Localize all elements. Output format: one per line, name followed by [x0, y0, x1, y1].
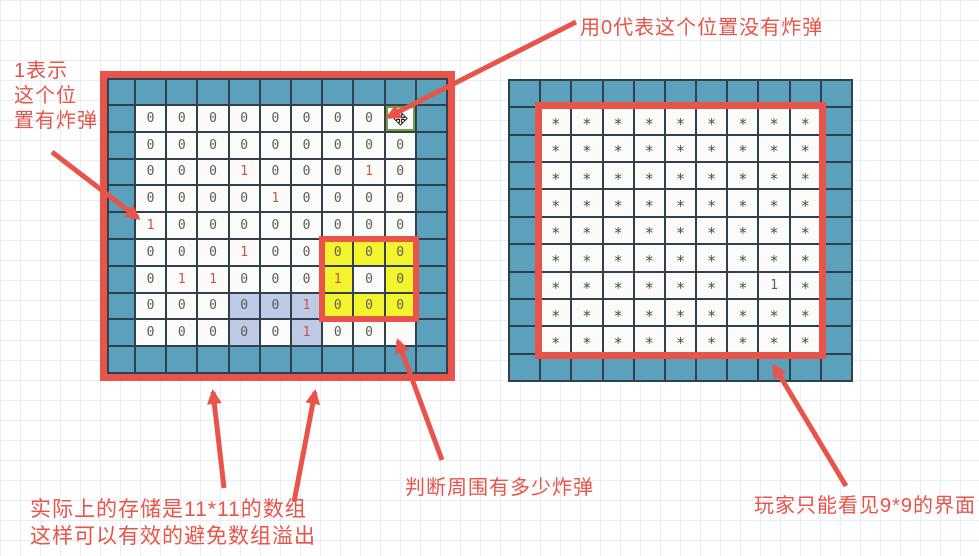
grid-cell: *: [541, 273, 570, 298]
cell-value: 0: [271, 298, 279, 313]
cell-value: *: [738, 279, 747, 297]
cell-value: 0: [240, 218, 248, 233]
grid-cell: *: [759, 300, 788, 325]
cell-value: *: [551, 142, 560, 160]
border-cell: [666, 355, 695, 380]
border-cell: [354, 80, 383, 104]
grid-cell: *: [541, 163, 570, 188]
grid-cell: 0: [136, 186, 165, 211]
border-cell: [604, 355, 633, 380]
grid-cell: 0: [198, 294, 227, 319]
border-cell: [510, 355, 539, 380]
cell-value: 0: [209, 164, 217, 179]
cell-value: *: [645, 197, 654, 215]
cell-value: *: [551, 197, 560, 215]
cell-value: *: [551, 279, 560, 297]
cell-value: 0: [365, 325, 373, 340]
cell-value: *: [676, 252, 685, 270]
cell-value: *: [738, 115, 747, 133]
annotation-left-line3: 置有炸弹: [14, 109, 98, 134]
grid-cell: *: [791, 245, 820, 270]
move-cursor-icon: [393, 111, 408, 126]
cell-value: *: [770, 115, 779, 133]
cell-value: 0: [303, 191, 311, 206]
cell-value: 0: [209, 298, 217, 313]
cell-value: *: [707, 252, 716, 270]
cell-value: *: [707, 197, 716, 215]
grid-cell: *: [604, 136, 633, 161]
grid-cell: *: [666, 163, 695, 188]
cell-value: *: [645, 307, 654, 325]
cell-value: 0: [271, 164, 279, 179]
cell-value: *: [676, 142, 685, 160]
grid-cell: *: [791, 163, 820, 188]
grid-cell: *: [604, 245, 633, 270]
cell-value: 0: [303, 111, 311, 126]
border-cell: [417, 347, 446, 372]
grid-cell: *: [759, 108, 788, 133]
cell-value: 0: [209, 245, 217, 260]
border-cell: [198, 347, 227, 372]
grid-cell: *: [759, 163, 788, 188]
grid-cell: *: [572, 300, 601, 325]
grid-cell: 1: [292, 320, 321, 345]
grid-cell: *: [635, 300, 664, 325]
grid-cell: *: [697, 190, 726, 215]
grid-cell: *: [572, 108, 601, 133]
cell-value: 0: [209, 218, 217, 233]
cell-value: 0: [147, 298, 155, 313]
cell-value: *: [645, 142, 654, 160]
border-cell: [697, 355, 726, 380]
grid-cell: *: [604, 163, 633, 188]
grid-cell: 0: [292, 267, 321, 292]
border-cell: [167, 347, 196, 372]
cell-value: 0: [240, 111, 248, 126]
grid-cell: *: [541, 300, 570, 325]
cell-value: *: [770, 224, 779, 242]
border-cell: [417, 186, 446, 211]
cell-value: 1: [303, 298, 311, 313]
cell-value: *: [551, 307, 560, 325]
cell-value: 0: [396, 218, 404, 233]
border-cell: [572, 81, 601, 106]
cell-value: *: [738, 252, 747, 270]
cell-value: 0: [209, 191, 217, 206]
grid-cell: *: [541, 136, 570, 161]
cell-value: *: [801, 115, 810, 133]
grid-cell: 0: [292, 186, 321, 211]
border-cell: [292, 347, 321, 372]
grid-cell: 0: [292, 133, 321, 158]
border-cell: [510, 327, 539, 352]
cell-value: 0: [147, 111, 155, 126]
border-cell: [822, 273, 851, 298]
cell-value: *: [551, 115, 560, 133]
cell-value: *: [676, 115, 685, 133]
grid-cell: *: [635, 218, 664, 243]
cell-value: *: [770, 334, 779, 352]
cell-value: 1: [770, 278, 778, 293]
cell-value: 0: [303, 218, 311, 233]
cell-value: *: [707, 334, 716, 352]
grid-cell: *: [728, 108, 757, 133]
cell-value: 0: [240, 191, 248, 206]
cell-value: 1: [240, 245, 248, 260]
cell-value: 0: [365, 138, 373, 153]
cell-value: *: [582, 197, 591, 215]
border-cell: [109, 320, 134, 345]
grid-cell: 0: [167, 213, 196, 238]
border-cell: [822, 245, 851, 270]
border-cell: [230, 347, 259, 372]
grid-cell: *: [697, 273, 726, 298]
grid-cell: 0: [198, 213, 227, 238]
grid-cell: *: [791, 300, 820, 325]
border-cell: [230, 80, 259, 104]
cell-value: 0: [178, 191, 186, 206]
cell-value: *: [645, 115, 654, 133]
border-cell: [822, 108, 851, 133]
border-cell: [417, 133, 446, 158]
player-view-grid: ****************************************…: [508, 79, 853, 382]
cell-value: 0: [147, 138, 155, 153]
cell-value: *: [582, 252, 591, 270]
grid-cell: 0: [167, 294, 196, 319]
border-cell: [510, 218, 539, 243]
grid-cell: 0: [292, 106, 321, 131]
grid-cell: *: [728, 136, 757, 161]
grid-cell: 0: [323, 160, 352, 185]
border-cell: [109, 106, 134, 131]
grid-cell: 0: [386, 213, 415, 238]
grid-cell: *: [759, 136, 788, 161]
cell-value: *: [738, 307, 747, 325]
cell-value: *: [801, 334, 810, 352]
border-cell: [822, 218, 851, 243]
border-cell: [109, 213, 134, 238]
border-cell: [109, 133, 134, 158]
border-cell: [822, 163, 851, 188]
cell-value: 0: [271, 218, 279, 233]
arrow-array-size-2: [294, 392, 315, 502]
border-cell: [635, 81, 664, 106]
grid-cell: *: [728, 300, 757, 325]
grid-cell: *: [697, 136, 726, 161]
border-cell: [572, 355, 601, 380]
border-cell: [109, 80, 134, 104]
border-cell: [791, 81, 820, 106]
cell-value: *: [770, 170, 779, 188]
grid-cell: *: [791, 273, 820, 298]
cell-value: 0: [271, 245, 279, 260]
cell-value: 0: [147, 325, 155, 340]
cell-value: *: [614, 252, 623, 270]
cursor-cell: [386, 106, 415, 131]
grid-cell: 1: [323, 267, 352, 292]
grid-cell: *: [604, 190, 633, 215]
cell-value: 0: [396, 191, 404, 206]
grid-cell: 1: [136, 213, 165, 238]
grid-cell: 0: [167, 106, 196, 131]
grid-cell: 0: [167, 186, 196, 211]
grid-cell: 0: [167, 133, 196, 158]
border-cell: [417, 294, 446, 319]
cell-value: *: [676, 279, 685, 297]
grid-cell: *: [728, 245, 757, 270]
grid-cell: 1: [759, 273, 788, 298]
grid-cell: 0: [136, 267, 165, 292]
annotation-bottom-right: 玩家只能看见9*9的界面: [754, 489, 976, 518]
grid-cell: 0: [230, 213, 259, 238]
grid-cell: 0: [261, 160, 290, 185]
grid-cell: *: [572, 136, 601, 161]
grid-cell: 0: [198, 133, 227, 158]
cell-value: *: [707, 115, 716, 133]
grid-cell: 0: [354, 294, 383, 319]
cell-value: 0: [365, 191, 373, 206]
grid-cell: 0: [198, 106, 227, 131]
border-cell: [759, 81, 788, 106]
annotation-left-line1: 1表示: [14, 59, 98, 84]
grid-cell: 0: [354, 240, 383, 265]
cell-value: *: [770, 197, 779, 215]
grid-cell: *: [666, 190, 695, 215]
grid-cell: *: [541, 218, 570, 243]
grid-cell: 0: [261, 267, 290, 292]
cell-value: 0: [209, 138, 217, 153]
border-cell: [510, 190, 539, 215]
grid-cell: 0: [261, 213, 290, 238]
grid-cell: 0: [354, 106, 383, 131]
cell-value: *: [645, 334, 654, 352]
grid-cell: *: [791, 327, 820, 352]
border-cell: [822, 81, 851, 106]
grid-cell: 0: [386, 186, 415, 211]
border-cell: [417, 160, 446, 185]
grid-cell: 0: [323, 133, 352, 158]
border-cell: [510, 136, 539, 161]
diagram-page: { "colors": { "red": "#e8544a", "teal": …: [0, 0, 979, 556]
cell-value: 0: [178, 298, 186, 313]
grid-cell: 1: [198, 267, 227, 292]
cell-value: 0: [396, 138, 404, 153]
cell-value: *: [738, 170, 747, 188]
cell-value: *: [614, 197, 623, 215]
grid-cell: 0: [230, 106, 259, 131]
cell-value: *: [770, 307, 779, 325]
cell-value: 0: [334, 164, 342, 179]
grid-cell: *: [666, 327, 695, 352]
arrow-player-view: [774, 366, 846, 486]
grid-cell: 0: [386, 160, 415, 185]
cell-value: 0: [334, 325, 342, 340]
cell-value: *: [614, 224, 623, 242]
border-cell: [323, 80, 352, 104]
grid-cell: *: [759, 327, 788, 352]
grid-cell: *: [541, 245, 570, 270]
cell-value: *: [770, 252, 779, 270]
grid-cell: 0: [292, 213, 321, 238]
grid-cell: 0: [323, 240, 352, 265]
border-cell: [510, 245, 539, 270]
cell-value: *: [801, 279, 810, 297]
cell-value: 0: [303, 245, 311, 260]
cell-value: *: [738, 224, 747, 242]
grid-cell: 0: [386, 294, 415, 319]
cell-value: 0: [396, 298, 404, 313]
border-cell: [666, 81, 695, 106]
grid-cell: *: [666, 218, 695, 243]
grid-cell: *: [728, 218, 757, 243]
cell-value: 0: [271, 272, 279, 287]
grid-cell: 0: [136, 160, 165, 185]
border-cell: [386, 80, 415, 104]
grid-cell: 0: [261, 320, 290, 345]
grid-cell: 0: [167, 320, 196, 345]
grid-cell: *: [697, 327, 726, 352]
cell-value: *: [614, 279, 623, 297]
grid-cell: *: [697, 245, 726, 270]
grid-cell: *: [697, 163, 726, 188]
cell-value: *: [614, 334, 623, 352]
cell-value: *: [551, 334, 560, 352]
border-cell: [510, 163, 539, 188]
border-cell: [136, 347, 165, 372]
grid-cell: 0: [323, 106, 352, 131]
border-cell: [759, 355, 788, 380]
grid-cell: 0: [323, 294, 352, 319]
cell-value: *: [551, 224, 560, 242]
grid-cell: *: [572, 190, 601, 215]
cell-value: *: [645, 170, 654, 188]
cell-value: 0: [178, 218, 186, 233]
grid-cell: 0: [323, 213, 352, 238]
grid-cell: *: [604, 218, 633, 243]
border-cell: [822, 327, 851, 352]
border-cell: [109, 267, 134, 292]
border-cell: [354, 347, 383, 372]
cell-value: *: [707, 224, 716, 242]
grid-cell: 0: [292, 240, 321, 265]
annotation-bottom-mid: 判断周围有多少炸弹: [405, 471, 594, 500]
annotation-left-line2: 这个位: [14, 84, 98, 109]
storage-grid: 0000000000000000000010001000001000010000…: [100, 71, 455, 381]
border-cell: [728, 81, 757, 106]
border-cell: [417, 240, 446, 265]
grid-cell: *: [635, 273, 664, 298]
grid-cell: *: [635, 136, 664, 161]
cell-value: 0: [240, 325, 248, 340]
cell-value: 0: [365, 298, 373, 313]
border-cell: [822, 136, 851, 161]
cell-value: *: [582, 334, 591, 352]
border-cell: [261, 80, 290, 104]
cell-value: *: [801, 252, 810, 270]
border-cell: [822, 355, 851, 380]
grid-cell: 0: [230, 186, 259, 211]
cell-value: 0: [240, 138, 248, 153]
cell-value: 0: [240, 298, 248, 313]
grid-cell: 0: [198, 240, 227, 265]
annotation-bottom-left-line1: 实际上的存储是11*11的数组: [30, 496, 316, 523]
grid-cell: *: [759, 190, 788, 215]
cell-value: 0: [334, 245, 342, 260]
grid-cell: *: [666, 136, 695, 161]
grid-cell: 0: [323, 186, 352, 211]
grid-cell: 0: [198, 320, 227, 345]
grid-cell: *: [572, 245, 601, 270]
cell-value: *: [614, 115, 623, 133]
cell-value: *: [676, 334, 685, 352]
grid-cell: 0: [167, 240, 196, 265]
cell-value: *: [801, 197, 810, 215]
cell-value: *: [582, 279, 591, 297]
grid-cell: 0: [292, 160, 321, 185]
border-cell: [417, 213, 446, 238]
cell-value: *: [676, 307, 685, 325]
grid-cell: *: [697, 218, 726, 243]
border-cell: [697, 81, 726, 106]
cell-value: *: [707, 170, 716, 188]
grid-cell: 1: [167, 267, 196, 292]
grid-cell: *: [635, 245, 664, 270]
cell-value: 0: [334, 138, 342, 153]
cell-value: 0: [271, 138, 279, 153]
border-cell: [541, 81, 570, 106]
grid-cell: 0: [230, 133, 259, 158]
cell-value: 0: [303, 272, 311, 287]
grid-cell: *: [791, 190, 820, 215]
border-cell: [109, 347, 134, 372]
grid-cell: *: [635, 190, 664, 215]
grid-cell: 0: [198, 186, 227, 211]
cell-value: 0: [334, 191, 342, 206]
cell-value: 0: [303, 138, 311, 153]
grid-cell: 0: [136, 106, 165, 131]
grid-cell: *: [728, 163, 757, 188]
cell-value: *: [614, 142, 623, 160]
cell-value: 0: [240, 272, 248, 287]
grid-cell: *: [572, 273, 601, 298]
grid-cell: *: [541, 327, 570, 352]
grid-cell: 1: [230, 160, 259, 185]
cell-value: 0: [396, 245, 404, 260]
cell-value: *: [551, 170, 560, 188]
cell-value: 0: [396, 164, 404, 179]
cell-value: *: [645, 279, 654, 297]
border-cell: [510, 273, 539, 298]
annotation-left: 1表示 这个位 置有炸弹: [14, 59, 98, 134]
grid-cell: *: [541, 190, 570, 215]
cell-value: *: [645, 224, 654, 242]
cell-value: *: [582, 115, 591, 133]
grid-cell: *: [728, 273, 757, 298]
cell-value: 0: [209, 111, 217, 126]
border-cell: [386, 347, 415, 372]
grid-cell: *: [759, 245, 788, 270]
cell-value: *: [582, 142, 591, 160]
border-cell: [791, 355, 820, 380]
grid-cell: 0: [386, 240, 415, 265]
border-cell: [136, 80, 165, 104]
cell-value: *: [582, 307, 591, 325]
cell-value: *: [582, 224, 591, 242]
annotation-bottom-left-line2: 这样可以有效的避免数组溢出: [30, 523, 316, 550]
grid-cell: *: [759, 218, 788, 243]
grid-cell: 0: [136, 294, 165, 319]
grid-cell: *: [791, 218, 820, 243]
